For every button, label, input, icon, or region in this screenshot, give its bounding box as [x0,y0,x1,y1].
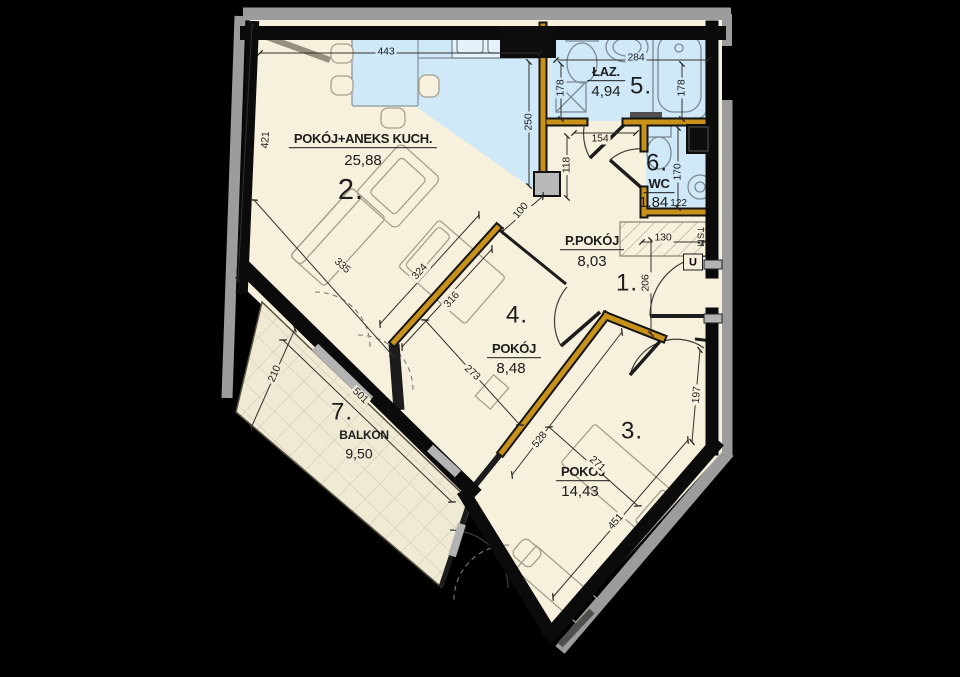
room-2-name: POKÓJ+ANEKS KUCH. [289,132,437,148]
room-6-width-dim: 122 [670,199,687,211]
entrance-jamb-top [704,260,722,269]
room-4-area: 8,48 [496,361,525,377]
room-1-area: 8,03 [577,254,606,270]
room-3-number: 3. [621,418,643,443]
room-2-number: 2. [338,175,364,205]
dim-left-421: 421 [260,129,272,151]
room-1-number: 1. [616,270,638,295]
dim-closet-130: 130 [653,232,674,243]
floor-plan-drawing [0,0,960,677]
room-7-area: 9,50 [345,447,372,462]
dim-wc-170: 170 [672,162,683,183]
entrance-jamb-bottom [704,314,722,323]
room-6-number: 6. [646,150,668,175]
concrete-post [534,172,560,196]
dim-top-443: 443 [376,46,397,57]
room-7-number: 7. [331,399,353,424]
dim-entry-197: 197 [691,384,704,406]
room-7-name: BALKON [334,429,394,443]
room-3-area: 14,43 [561,484,599,500]
dim-nook-118: 118 [561,155,572,175]
dim-hall-206: 206 [640,273,651,294]
room-5-area: 4,94 [591,84,620,100]
room-5-number: 5. [630,73,652,98]
room-6-name: WC [643,177,674,193]
dim-bath-284: 284 [626,52,647,63]
room-5-name: ŁAZ. [587,65,625,81]
room-4-number: 4. [506,302,528,327]
dim-nook-154: 154 [590,133,611,144]
shaft-label-tsm: TSM [695,227,704,248]
dim-bath-178-right: 178 [676,78,687,99]
room-1-name: P.POKÓJ [560,234,624,250]
dim-bath-178-left: 178 [555,78,566,99]
utility-box-u: U [683,254,703,271]
room-2-area: 25,88 [344,153,382,169]
room-6-area-row: 1,84 122 [639,195,687,211]
floor-plan-page: POKÓJ+ANEKS KUCH. 25,88 2. ŁAZ. 4,94 5. … [0,0,960,677]
duct-shaft-wc [686,124,711,154]
dim-kitchen-250: 250 [523,112,534,133]
room-6-area: 1,84 [639,195,668,211]
room-4-name: POKÓJ [487,342,541,358]
